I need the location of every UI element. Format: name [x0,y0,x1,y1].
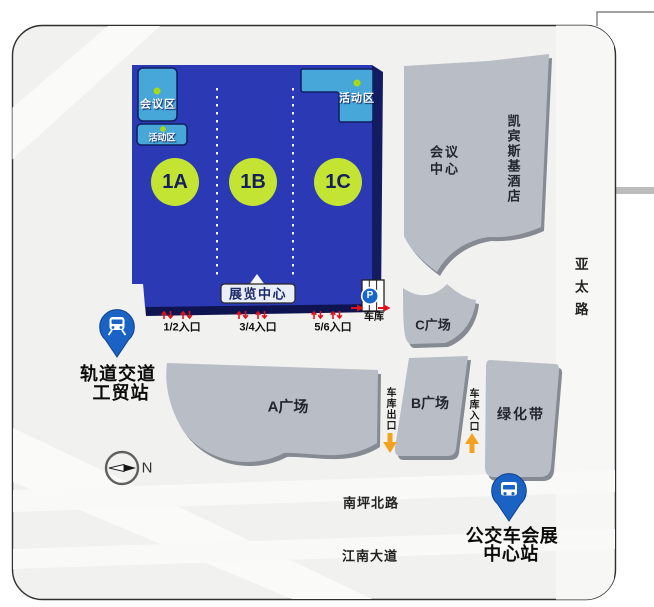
garage-label: 车库 [364,313,384,323]
exhibition-center-label: 展览中心 [229,288,287,301]
entrance-1-2-label: 1/2入口 [163,323,200,334]
compass-north-label: N [142,461,153,476]
metro-station-label-line1: 轨道交道 [80,365,156,383]
venue-map: 1A 1B 1C 会议区 活动区 活动区 展览中心 1/2入口 3/4入口 5/… [0,0,654,607]
meeting-area-label: 会议区 [140,100,176,111]
entrance-5-6-label: 5/6入口 [314,323,351,334]
c-plaza-label: C广场 [415,319,450,332]
metro-station-label-line2: 工贸站 [93,384,150,402]
green-belt-label: 绿化带 [497,407,545,421]
entrance-3-4-label: 3/4入口 [239,323,276,334]
conference-center-label-line2: 中心 [430,163,460,176]
parking-symbol: P [367,291,374,301]
hotel-label: 凯宾斯基酒店 [507,114,520,204]
yatai-road-label: 亚太路 [573,257,587,325]
map-labels: 1A 1B 1C 会议区 活动区 活动区 展览中心 1/2入口 3/4入口 5/… [0,0,654,607]
activity-area-right-label: 活动区 [339,94,375,105]
a-plaza-label: A广场 [268,400,309,415]
nanping-north-road-label: 南坪北路 [343,497,399,510]
bus-station-label-line1: 公交车会展 [466,527,559,545]
jiangnan-avenue-label: 江南大道 [342,550,398,563]
hall-section-1a-label: 1A [162,172,188,192]
bus-station-label-line2: 中心站 [483,545,539,563]
activity-area-left-label: 活动区 [148,134,175,143]
garage-entrance-label: 车库入口 [467,388,477,432]
b-plaza-label: B广场 [411,396,449,410]
hall-section-1c-label: 1C [325,172,351,192]
garage-exit-label: 车库出口 [384,387,394,431]
hall-section-1b-label: 1B [240,172,266,192]
conference-center-label-line1: 会议 [430,146,460,159]
